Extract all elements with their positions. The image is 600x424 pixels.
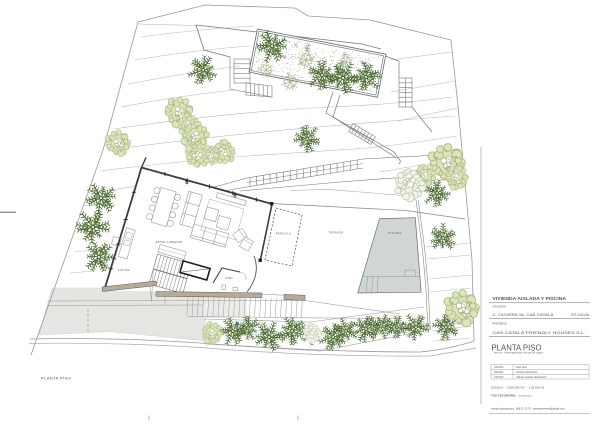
svg-text:TJO TJO DIGITAL , arquitecto: TJO TJO DIGITAL , arquitecto [491,394,532,398]
svg-text:COCINA: COCINA [118,268,130,272]
svg-text:20/04/23: 20/04/23 [494,371,504,374]
svg-text:SITUACIÓN: SITUACIÓN [493,306,506,309]
svg-text:ESTAR COMEDOR: ESTAR COMEDOR [156,240,183,244]
svg-text:PISCINA: PISCINA [388,231,401,235]
svg-text:TERRAZA: TERRAZA [329,231,344,235]
svg-text:CAS CATALÀ FRIENDLY HOUSES S.L: CAS CATALÀ FRIENDLY HOUSES S.L. [493,331,586,335]
svg-text:ASEO: ASEO [225,277,233,280]
svg-text:PROPIEDAD: PROPIEDAD [493,323,507,326]
svg-text:VIVIENDA AISLADA Y PISCINA: VIVIENDA AISLADA Y PISCINA [493,296,567,301]
svg-text:C. OLIVERA 16, CAS CATALÀ: C. OLIVERA 16, CAS CATALÀ [493,313,555,317]
svg-text:PERGOLA: PERGOLA [276,232,291,236]
svg-text:PLANTA PISO: PLANTA PISO [492,344,542,353]
svg-text:cambios distribución: cambios distribución [516,371,538,374]
svg-text:01/03/23: 01/03/23 [494,366,504,369]
svg-text:REF 2216 · VIVIENDA AISLADA Y: REF 2216 · VIVIENDA AISLADA Y PISCINA CA… [494,352,544,355]
svg-text:estudio arquitectura, 666.11.: estudio arquitectura, 666.11.70.79, tres… [491,407,565,411]
svg-text:ESCALA: 1:100 DIN A3 - 1:5: ESCALA: 1:100 DIN A3 - 1:50 DIN A1 [491,386,545,390]
svg-text:Últimos cambios distribución: Últimos cambios distribución [516,376,547,379]
svg-text:PLANTA PISO: PLANTA PISO [41,376,71,381]
svg-text:767 CALVIÀ: 767 CALVIÀ [571,313,590,317]
svg-text:31/07/23: 31/07/23 [494,376,504,379]
svg-text:Fase obra: Fase obra [516,366,527,369]
